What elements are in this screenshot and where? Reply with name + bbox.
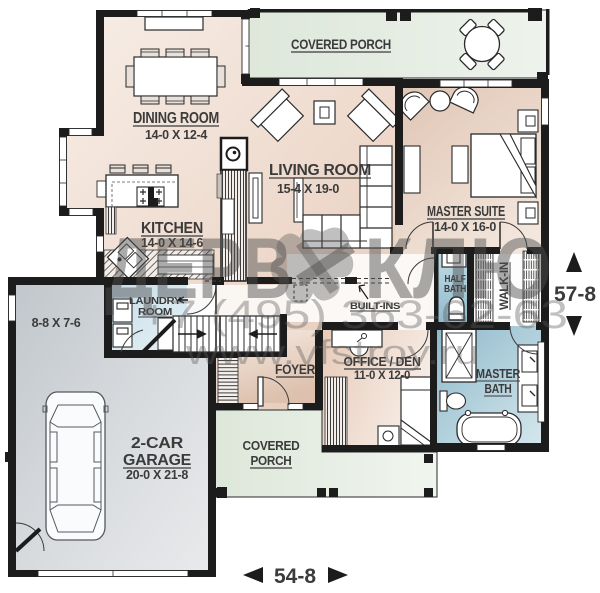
svg-text:+7 (495) 363-62-63: +7 (495) 363-62-63	[140, 293, 568, 337]
svg-text:LIVING ROOM: LIVING ROOM	[269, 162, 371, 179]
svg-text:BATH: BATH	[485, 382, 512, 396]
svg-text:MASTER: MASTER	[476, 367, 520, 381]
svg-text:PORCH: PORCH	[251, 454, 292, 468]
svg-text:8-8 X 7-6: 8-8 X 7-6	[32, 316, 81, 330]
svg-text:2-CAR: 2-CAR	[131, 435, 184, 452]
svg-text:GARAGE: GARAGE	[123, 452, 192, 469]
svg-text:DINING ROOM: DINING ROOM	[133, 110, 219, 127]
svg-text:www.vfstroy.ru: www.vfstroy.ru	[185, 334, 480, 372]
svg-text:15-4 X 19-0: 15-4 X 19-0	[277, 182, 339, 196]
svg-text:COVERED PORCH: COVERED PORCH	[291, 36, 391, 52]
svg-text:14-0 X 12-4: 14-0 X 12-4	[145, 128, 207, 142]
svg-text:COVERED: COVERED	[243, 439, 300, 453]
svg-text:20-0 X 21-8: 20-0 X 21-8	[126, 468, 188, 482]
svg-text:54-8: 54-8	[274, 565, 316, 588]
svg-text:MASTER SUITE: MASTER SUITE	[427, 203, 505, 220]
